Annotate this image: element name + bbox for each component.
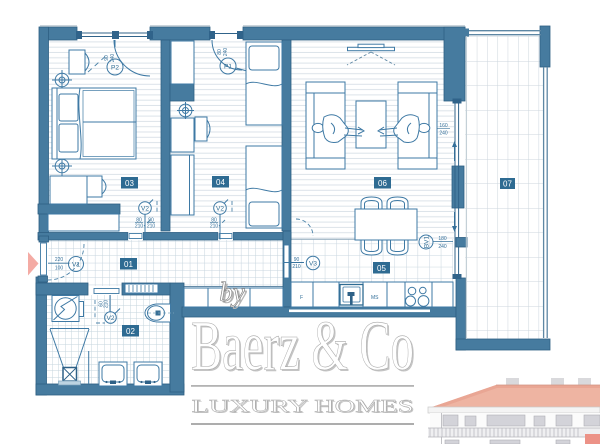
svg-text:V2: V2 — [141, 206, 149, 213]
svg-text:by: by — [219, 277, 245, 307]
svg-text:02: 02 — [126, 327, 135, 336]
svg-text:V3: V3 — [309, 261, 317, 268]
svg-text:210: 210 — [292, 264, 301, 270]
svg-text:210: 210 — [104, 300, 110, 309]
svg-text:F: F — [300, 295, 303, 301]
svg-text:V1: V1 — [72, 262, 80, 269]
svg-text:210: 210 — [147, 224, 156, 230]
svg-text:V2: V2 — [216, 206, 224, 213]
svg-text:180: 180 — [438, 236, 447, 242]
svg-text:04: 04 — [216, 178, 225, 187]
svg-text:240: 240 — [223, 48, 229, 57]
svg-text:210: 210 — [210, 224, 219, 230]
svg-text:240: 240 — [110, 54, 116, 63]
svg-text:01: 01 — [124, 260, 133, 269]
svg-text:Baerz & Co: Baerz & Co — [191, 308, 414, 386]
svg-text:220: 220 — [55, 257, 64, 263]
svg-text:210: 210 — [135, 224, 144, 230]
svg-text:240: 240 — [438, 244, 447, 250]
svg-text:07: 07 — [503, 180, 512, 189]
svg-text:03: 03 — [125, 179, 134, 188]
svg-text:160: 160 — [439, 123, 448, 129]
svg-text:MS: MS — [371, 295, 379, 301]
svg-text:240: 240 — [439, 131, 448, 137]
svg-text:P1: P1 — [224, 64, 232, 71]
svg-text:05: 05 — [377, 264, 386, 273]
svg-text:90: 90 — [294, 257, 300, 263]
svg-text:06: 06 — [378, 179, 387, 188]
svg-text:V2: V2 — [107, 315, 115, 322]
svg-text:LUXURY HOMES: LUXURY HOMES — [192, 396, 414, 416]
svg-text:100: 100 — [55, 266, 64, 272]
svg-text:BV1: BV1 — [424, 235, 431, 248]
svg-text:P2: P2 — [111, 65, 119, 72]
